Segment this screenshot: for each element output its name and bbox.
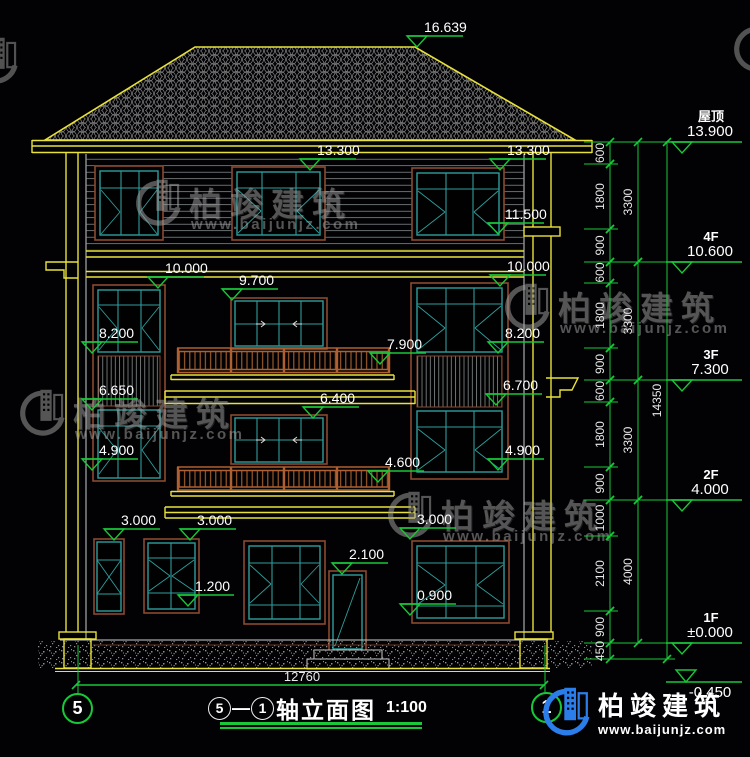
svg-text:4000: 4000 [621, 558, 635, 585]
svg-text:3.000: 3.000 [197, 512, 232, 528]
floor-level-markers: 屋顶13.9004F10.6003F7.3002F4.0001F±0.000-0… [666, 109, 742, 701]
svg-text:3.000: 3.000 [417, 511, 452, 527]
title-underline [220, 722, 422, 725]
svg-text:2F: 2F [703, 467, 718, 482]
svg-text:3300: 3300 [621, 188, 635, 215]
svg-text:4.600: 4.600 [385, 454, 420, 470]
svg-text:1800: 1800 [593, 183, 607, 210]
svg-text:600: 600 [593, 381, 607, 401]
svg-text:1000: 1000 [593, 504, 607, 531]
svg-text:3.000: 3.000 [121, 512, 156, 528]
svg-text:16.639: 16.639 [424, 19, 467, 35]
annotations-layer: 16.63913.30013.30011.50010.00010.0009.70… [0, 0, 750, 757]
svg-text:14350: 14350 [650, 383, 664, 417]
svg-text:1.200: 1.200 [195, 578, 230, 594]
svg-text:1F: 1F [703, 610, 718, 625]
svg-text:13.300: 13.300 [507, 142, 550, 158]
svg-text:2.100: 2.100 [349, 546, 384, 562]
svg-text:4F: 4F [703, 229, 718, 244]
svg-text:3300: 3300 [621, 426, 635, 453]
svg-text:8.200: 8.200 [505, 325, 540, 341]
svg-text:13.900: 13.900 [687, 123, 733, 140]
svg-text:2100: 2100 [593, 560, 607, 587]
dimension-chains: 6001800900600180090060018009001000210090… [584, 138, 675, 663]
drawing-title: 5 — 1 轴立面图 1:100 [208, 691, 427, 725]
title-axis-to: 1 [251, 697, 274, 720]
svg-text:屋顶: 屋顶 [698, 109, 724, 124]
svg-text:9.700: 9.700 [239, 272, 274, 288]
title-underline-2 [220, 727, 422, 729]
svg-text:13.300: 13.300 [317, 142, 360, 158]
svg-text:600: 600 [593, 262, 607, 282]
svg-text:900: 900 [593, 354, 607, 374]
elevation-markers: 16.63913.30013.30011.50010.00010.0009.70… [82, 19, 550, 615]
svg-text:4.900: 4.900 [99, 442, 134, 458]
svg-text:3F: 3F [703, 347, 718, 362]
svg-text:1800: 1800 [593, 421, 607, 448]
svg-text:1800: 1800 [593, 302, 607, 329]
svg-text:900: 900 [593, 473, 607, 493]
svg-text:6.650: 6.650 [99, 382, 134, 398]
footer-brand: 柏竣建筑 [598, 686, 726, 723]
svg-text:4.000: 4.000 [691, 481, 729, 498]
title-text: 轴立面图 [276, 691, 376, 725]
svg-text:10.600: 10.600 [687, 243, 733, 260]
footer-url: www.baijunjz.com [598, 722, 726, 737]
bottom-dimension: 12760 [72, 669, 548, 689]
baijun-logo-icon [540, 684, 594, 742]
svg-text:10.000: 10.000 [165, 260, 208, 276]
title-scale: 1:100 [386, 699, 427, 717]
svg-text:7.300: 7.300 [691, 361, 729, 378]
svg-text:7.900: 7.900 [387, 336, 422, 352]
svg-text:3300: 3300 [621, 307, 635, 334]
footer-logo: 柏竣建筑 www.baijunjz.com [540, 684, 748, 754]
cad-elevation-screenshot: 柏竣建筑 www.baijunjz.com 柏竣建筑 www.baijunjz.… [0, 0, 750, 757]
svg-text:0.900: 0.900 [417, 587, 452, 603]
svg-text:12760: 12760 [284, 669, 320, 684]
svg-text:10.000: 10.000 [507, 258, 550, 274]
svg-text:4.900: 4.900 [505, 442, 540, 458]
axis-bubble-left: 5 [62, 693, 93, 724]
svg-text:900: 900 [593, 617, 607, 637]
title-axis-from: 5 [208, 697, 231, 720]
svg-text:±0.000: ±0.000 [687, 624, 733, 641]
title-separator: — [232, 698, 250, 719]
svg-text:6.400: 6.400 [320, 390, 355, 406]
svg-text:450: 450 [593, 641, 607, 661]
svg-text:8.200: 8.200 [99, 325, 134, 341]
svg-text:11.500: 11.500 [505, 206, 547, 222]
svg-text:600: 600 [593, 143, 607, 163]
svg-text:900: 900 [593, 235, 607, 255]
svg-text:6.700: 6.700 [503, 377, 538, 393]
